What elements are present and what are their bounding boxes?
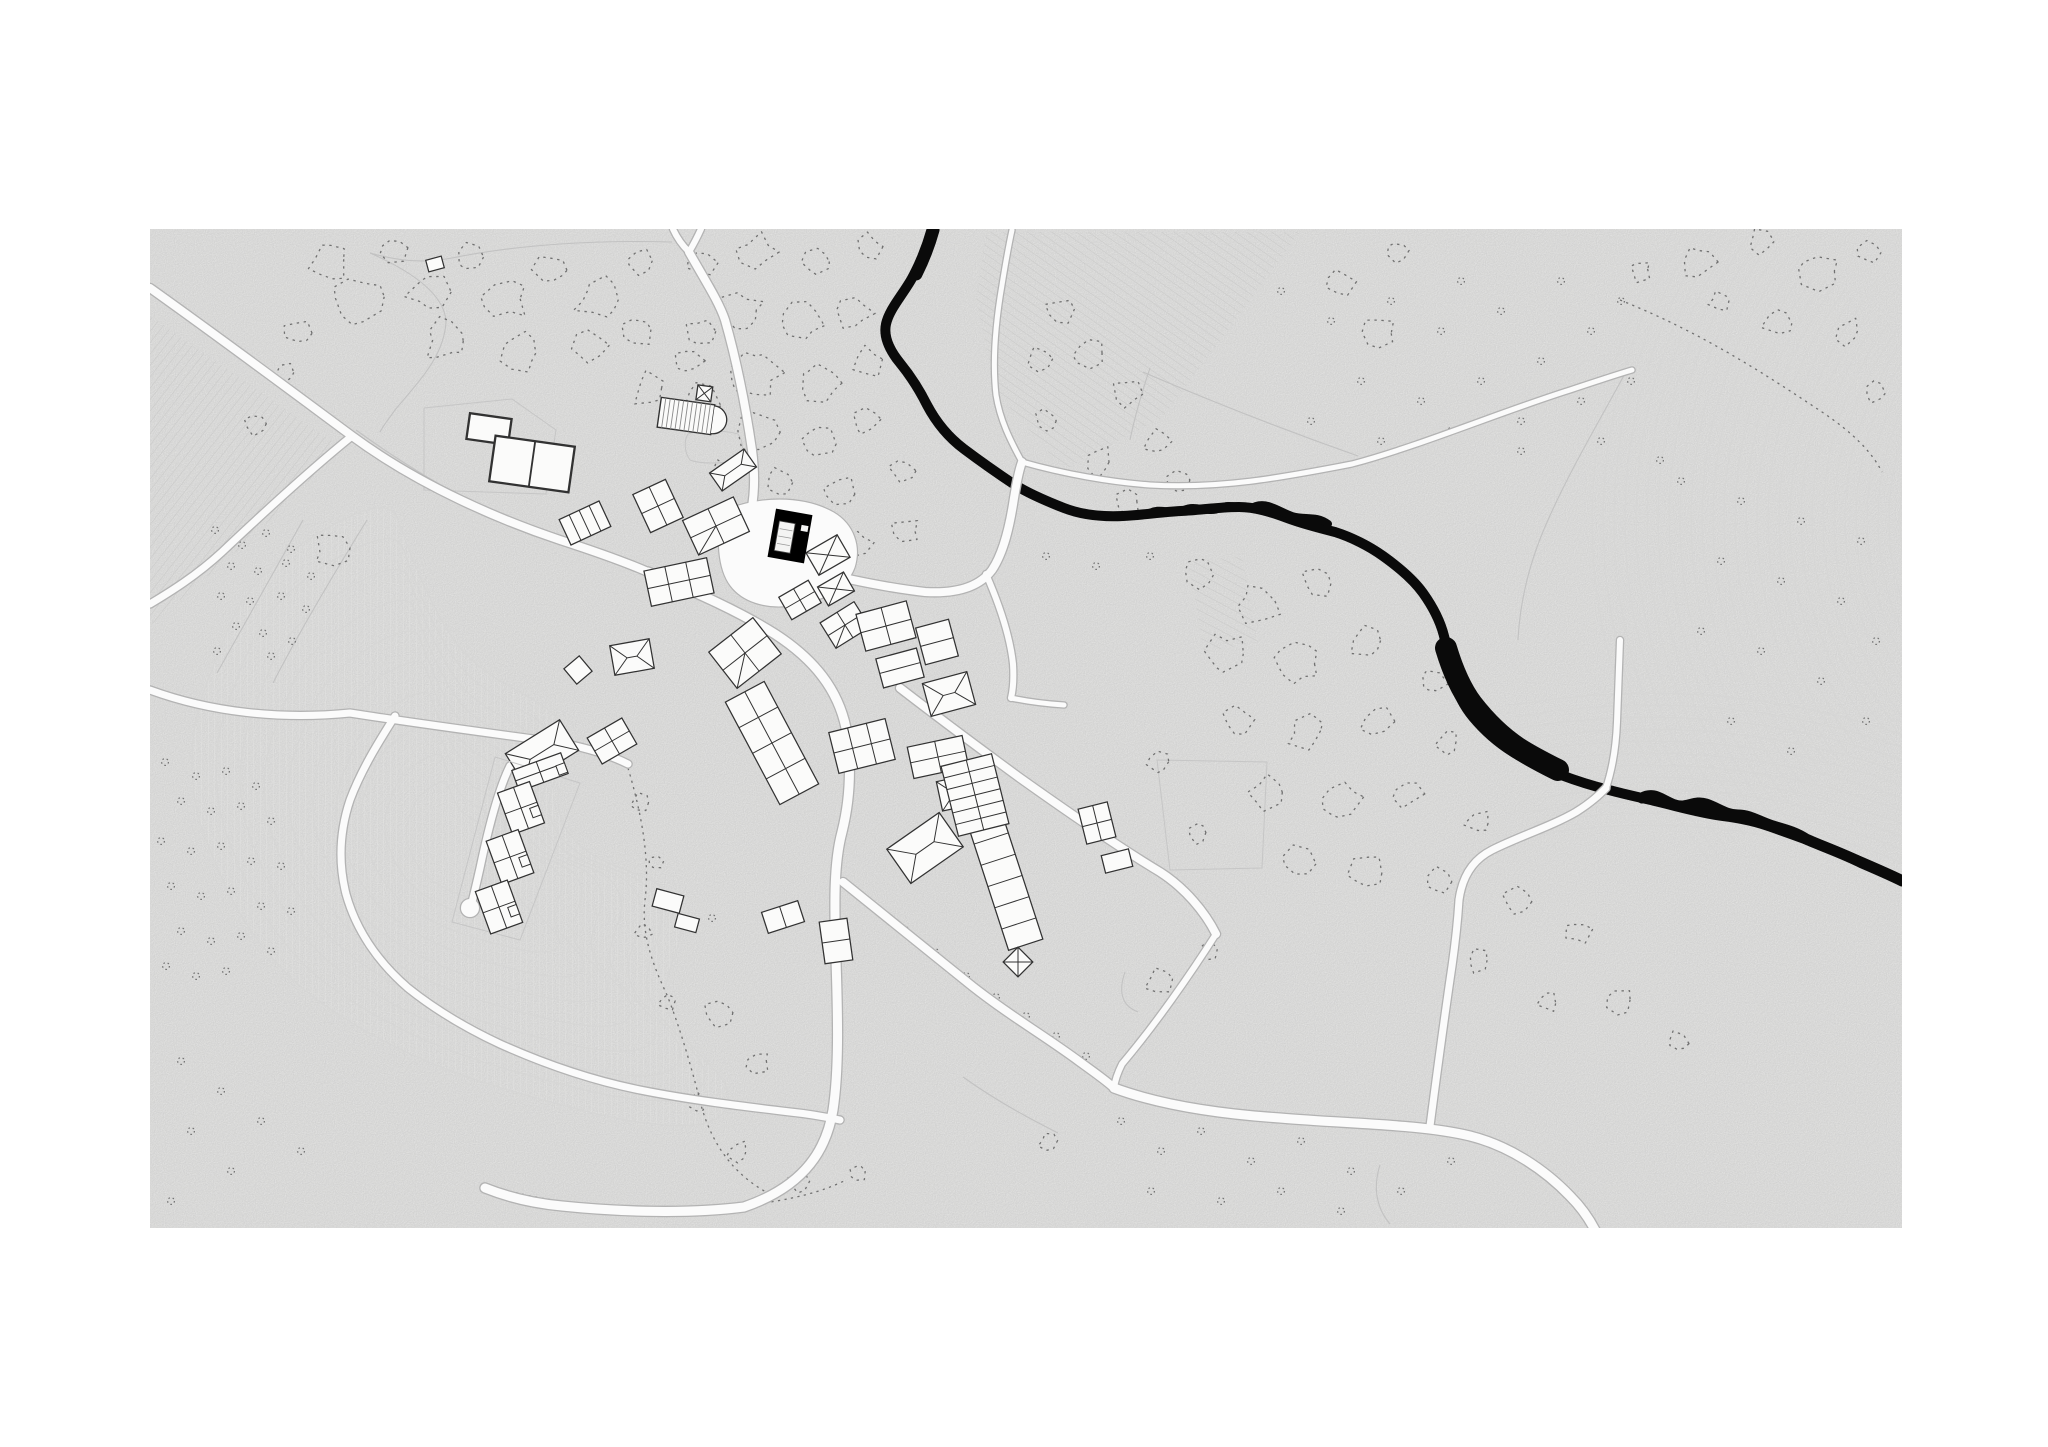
building [819, 918, 853, 963]
site-plan-map [0, 0, 2048, 1447]
church-tower [696, 385, 713, 402]
building [489, 436, 575, 493]
project-notch [801, 525, 809, 532]
culdesac [461, 899, 479, 917]
project-building [768, 509, 812, 563]
site-plan-page [0, 0, 2048, 1447]
building [610, 639, 655, 675]
map-layers [150, 184, 2048, 1232]
